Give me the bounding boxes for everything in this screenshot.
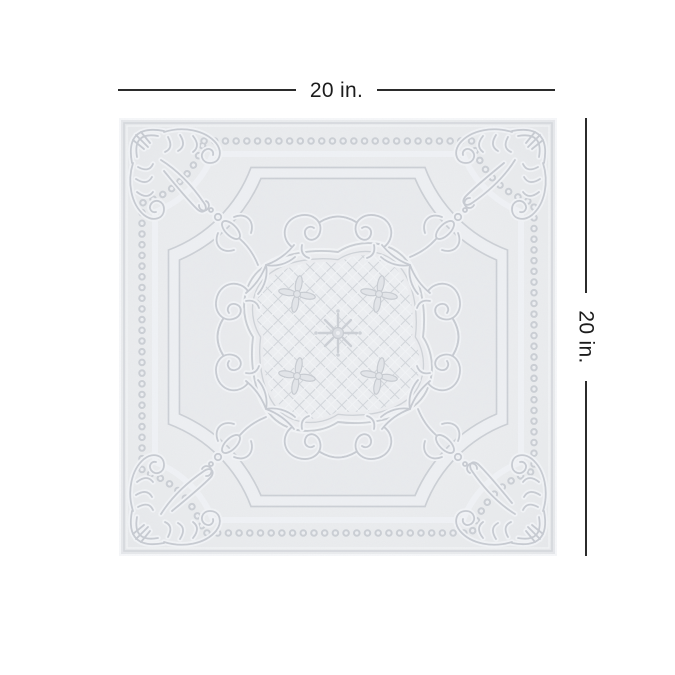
right-dimension-label-box: 20 in. [575, 307, 597, 367]
right-dimension-line-top [585, 118, 587, 293]
right-dimension-label: 20 in. [576, 310, 597, 363]
right-dimension-line-bottom [585, 381, 587, 556]
top-dimension-line-left [118, 89, 296, 91]
tile-speckle-texture [119, 118, 557, 556]
right-dimension-annotation: 20 in. [575, 118, 597, 556]
ceiling-tile-image [119, 118, 557, 556]
product-dimension-image: 20 in. 20 in. [0, 0, 675, 675]
top-dimension-annotation: 20 in. [118, 78, 555, 102]
top-dimension-line-right [377, 89, 555, 91]
top-dimension-label: 20 in. [310, 80, 363, 101]
